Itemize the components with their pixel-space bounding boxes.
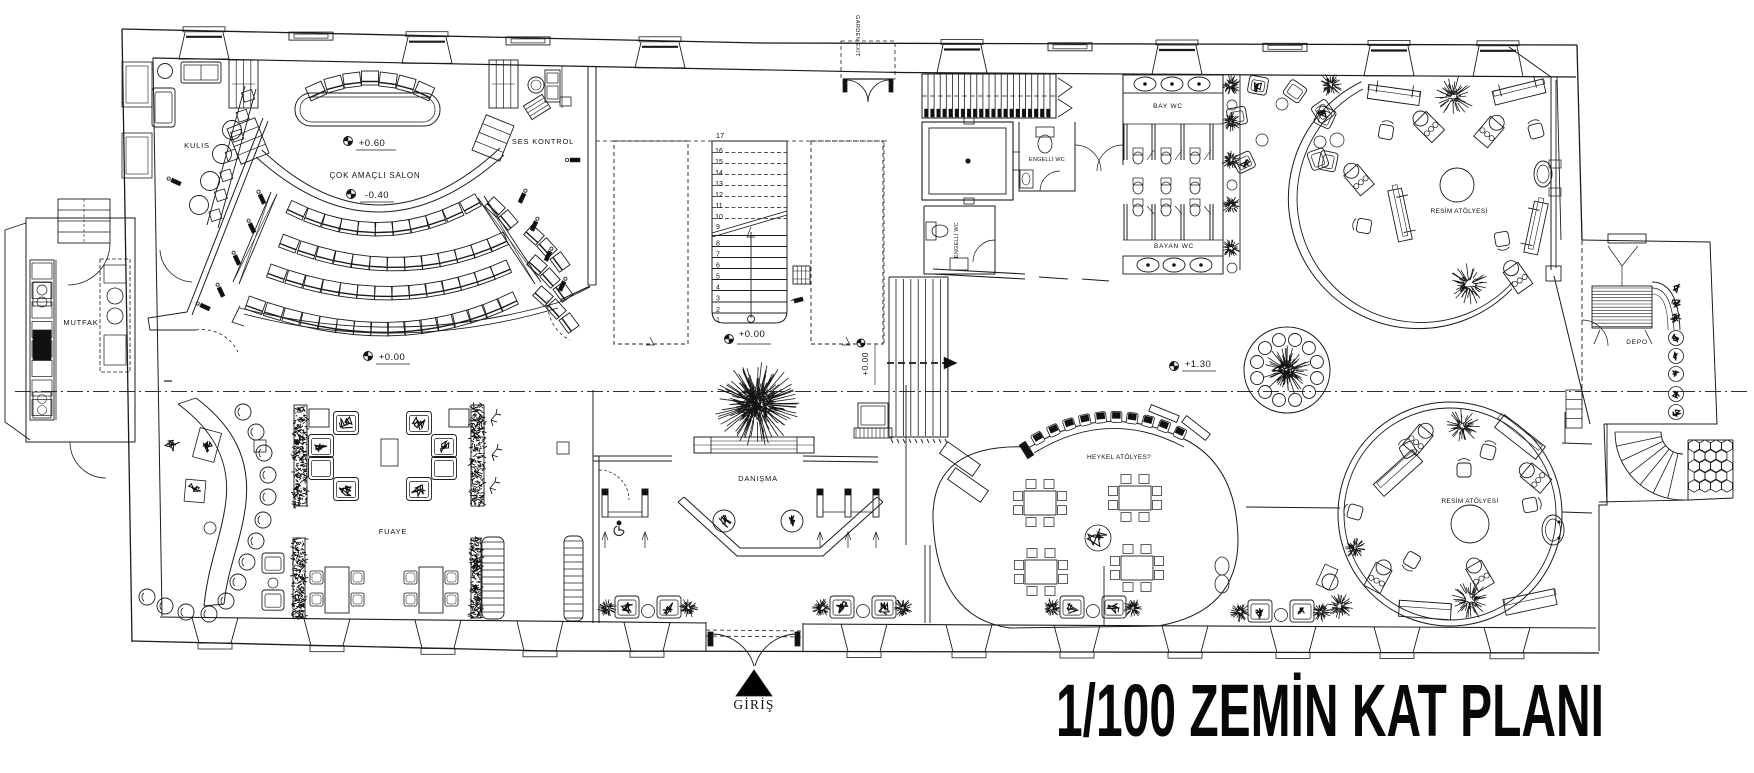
svg-text:RESİM ATÖLYESİ: RESİM ATÖLYESİ (1441, 496, 1498, 505)
svg-text:14: 14 (715, 170, 723, 177)
svg-text:4: 4 (716, 285, 720, 292)
svg-text:DANIŞMA: DANIŞMA (738, 474, 778, 483)
svg-text:DEPO: DEPO (1626, 339, 1648, 346)
svg-text:+0.60: +0.60 (359, 138, 386, 149)
svg-text:+0.00: +0.00 (860, 352, 870, 376)
svg-text:MUTFAK: MUTFAK (63, 318, 98, 327)
svg-text:9: 9 (716, 224, 720, 231)
svg-text:15: 15 (715, 159, 723, 166)
svg-text:7: 7 (716, 252, 720, 259)
svg-text:KULIS: KULIS (184, 141, 210, 150)
svg-text:ÇOK AMAÇLI SALON: ÇOK AMAÇLI SALON (329, 171, 420, 180)
svg-text:10: 10 (715, 214, 723, 221)
svg-text:RESİM ATÖLYESİ: RESİM ATÖLYESİ (1430, 206, 1487, 215)
svg-text:5: 5 (716, 274, 720, 281)
svg-text:-0.40: -0.40 (365, 190, 389, 201)
svg-text:ENGELLİ WC: ENGELLİ WC (1029, 156, 1065, 163)
svg-text:16: 16 (715, 148, 723, 155)
svg-text:+0.00: +0.00 (379, 352, 406, 363)
svg-text:SES KONTROL: SES KONTROL (512, 137, 574, 146)
svg-text:BAYAN WC: BAYAN WC (1154, 243, 1194, 250)
svg-text:17: 17 (716, 131, 724, 140)
svg-text:11: 11 (715, 203, 722, 210)
svg-text:6: 6 (716, 263, 720, 270)
svg-text:1/100 ZEMİN KAT PLANI: 1/100 ZEMİN KAT PLANI (1056, 669, 1604, 752)
svg-text:FUAYE: FUAYE (379, 527, 407, 536)
svg-text:2: 2 (716, 307, 720, 314)
svg-text:13: 13 (715, 181, 723, 188)
svg-text:+0.00: +0.00 (739, 329, 766, 340)
svg-text:1: 1 (716, 317, 720, 324)
svg-text:8: 8 (716, 241, 720, 248)
svg-text:+1.30: +1.30 (1185, 359, 1212, 370)
svg-text:BAY WC: BAY WC (1153, 103, 1183, 110)
svg-text:GİRİŞ: GİRİŞ (733, 697, 774, 712)
svg-text:ENGELLİ WC: ENGELLİ WC (953, 222, 960, 258)
svg-text:12: 12 (715, 192, 723, 199)
svg-text:3: 3 (716, 296, 720, 303)
svg-text:HEYKEL ATÖLYES?: HEYKEL ATÖLYES? (1087, 453, 1151, 461)
svg-text:GARDEN EXIT: GARDEN EXIT (854, 15, 860, 57)
